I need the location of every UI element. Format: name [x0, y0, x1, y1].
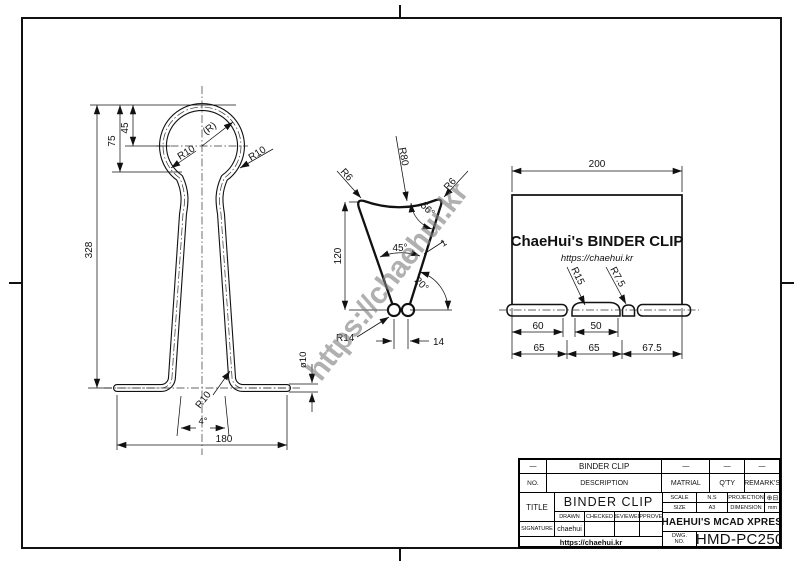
title-block-row2: NO. DESCRIPTION MATRIAL Q'TY REMARK'S [520, 474, 779, 493]
dim-180-label: 180 [216, 434, 233, 445]
r6-right-label: R6 [442, 176, 459, 193]
front-dimension-labels: 328 75 45 (R) R10 R10 R10 4° 180 ø10 [84, 120, 309, 445]
col-qty-header: Q'TY [710, 474, 745, 493]
row1-dash-3: — [710, 460, 745, 474]
title-block-main: TITLE BINDER CLIP DRAWN CHECKED REVIEWED… [520, 493, 779, 547]
r6-left-label: R6 [338, 167, 355, 184]
signature-label: SIGNATURE [520, 522, 555, 537]
dim-120-label: 120 [333, 247, 344, 264]
dwg-no-value: CHMD-PC2506 [697, 532, 780, 547]
row1-dash-2: — [662, 460, 710, 474]
angle-45-label: 45° [392, 243, 407, 254]
projection-symbol: ⊕⊟ [765, 493, 780, 503]
dwg-label-line2: NO. [675, 540, 685, 546]
lip-hump-r7-5 [623, 305, 635, 316]
dim-67-5-label: 67.5 [642, 343, 662, 354]
side-view: 120 R80 R6 R6 56° 45° 20° 1 R14 14 [333, 136, 468, 349]
dim-65b-label: 65 [588, 343, 600, 354]
title-block-right: SCALE N.S PROJECTION ⊕⊟ SIZE A3 DIMENSIO… [663, 493, 780, 547]
dim-75-label: 75 [107, 135, 118, 147]
col-description-header: DESCRIPTION [547, 474, 663, 493]
col-no-header: NO. [520, 474, 547, 493]
row1-dash-4: — [745, 460, 779, 474]
r10-left-label: R10 [176, 143, 198, 162]
r10-right-label: R10 [247, 144, 269, 163]
dimension-value: mm [765, 503, 780, 513]
wire-loop-left [388, 304, 400, 316]
col-matrial-header: MATRIAL [662, 474, 710, 493]
bottom-lip-strip [507, 303, 691, 317]
title-block-row1: — BINDER CLIP — — — [520, 460, 779, 474]
title-block: — BINDER CLIP — — — NO. DESCRIPTION MATR… [518, 458, 781, 548]
drawn-header: DRAWN [555, 512, 585, 522]
r14-label: R14 [336, 333, 355, 344]
angle-4-label: 4° [198, 416, 207, 427]
title-label: TITLE [520, 493, 555, 522]
dim-200-label: 200 [589, 159, 606, 170]
reviewed-value [615, 522, 640, 537]
dim-328-label: 328 [84, 241, 95, 258]
checked-value [585, 522, 615, 537]
title-block-url: https://chaehui.kr [520, 537, 663, 547]
brand-url-text: https://chaehui.kr [561, 253, 634, 264]
lip-dome-r15 [572, 303, 620, 317]
front-view: 328 75 45 (R) R10 R10 R10 4° 180 ø10 [84, 86, 318, 455]
signature-value: chaehui [555, 522, 585, 537]
row1-dash-1: — [520, 460, 547, 474]
title-block-left: TITLE BINDER CLIP DRAWN CHECKED REVIEWED… [520, 493, 663, 547]
side-dimension-labels: 120 R80 R6 R6 56° 45° 20° 1 R14 14 [333, 147, 459, 348]
scale-label: SCALE [663, 493, 697, 503]
scale-value: N.S [697, 493, 728, 503]
dim-14-label: 14 [433, 337, 445, 348]
dim-50-label: 50 [590, 321, 602, 332]
r10-bottom-label: R10 [194, 389, 214, 411]
dim-45-label: 45 [120, 122, 131, 134]
approved-header: APPROVED [640, 512, 663, 522]
dwg-no-label: DWG. NO. [663, 532, 697, 547]
company-name: CHAEHUI'S MCAD XPRESS [663, 513, 780, 532]
row1-part-name: BINDER CLIP [547, 460, 663, 474]
dimension-label: DIMENSION [728, 503, 765, 513]
dia-10-label: ø10 [298, 352, 309, 368]
r7-5-label: R7.5 [607, 265, 627, 289]
thickness-1-label: 1 [439, 237, 449, 249]
projection-label: PROJECTION [728, 493, 765, 503]
checked-header: CHECKED [585, 512, 615, 522]
dim-65a-label: 65 [533, 343, 545, 354]
size-label: SIZE [663, 503, 697, 513]
brand-text: ChaeHui's BINDER CLIP [511, 233, 684, 250]
drawing-sheet: 328 75 45 (R) R10 R10 R10 4° 180 ø10 [0, 0, 800, 566]
title-value: BINDER CLIP [555, 493, 663, 512]
col-remarks-header: REMARK'S [745, 474, 779, 493]
body-rect [512, 195, 682, 305]
reviewed-header: REVIEWED [615, 512, 640, 522]
dim-60-label: 60 [532, 321, 544, 332]
angle-56-label: 56° [418, 200, 436, 218]
r80-label: R80 [396, 147, 410, 167]
size-value: A3 [697, 503, 728, 513]
plan-view: 200 R15 R7.5 60 50 65 65 67.5 ChaeHui's … [499, 159, 699, 359]
approved-value [640, 522, 663, 537]
